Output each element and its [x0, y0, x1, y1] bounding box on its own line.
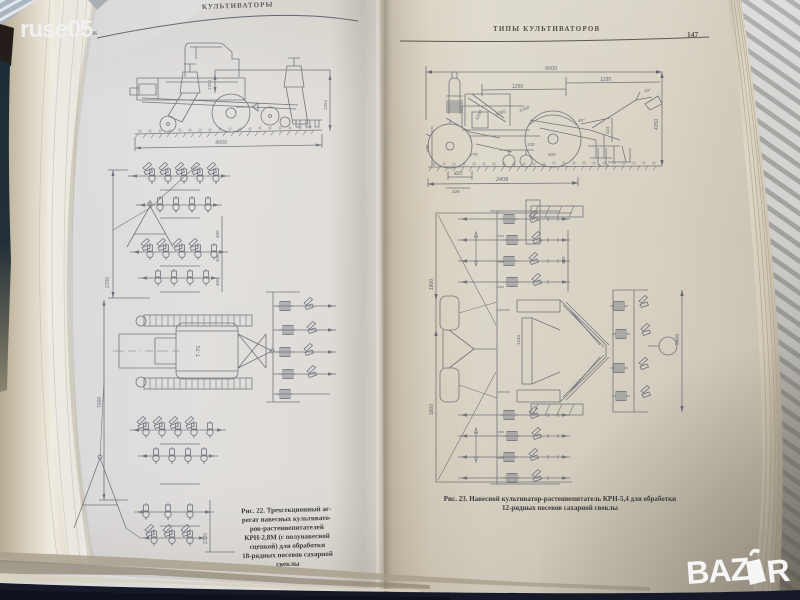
svg-text:5000: 5000	[545, 66, 558, 72]
svg-text:ruse05: ruse05	[20, 16, 93, 43]
svg-text:2700: 2700	[203, 533, 209, 544]
svg-text:10°: 10°	[644, 88, 651, 93]
svg-text:1240: 1240	[516, 334, 521, 345]
svg-text:BAZ: BAZ	[685, 551, 751, 591]
svg-text:424: 424	[605, 126, 610, 134]
svg-text:428: 428	[452, 189, 460, 194]
svg-text:4150: 4150	[654, 119, 660, 130]
svg-text:1800: 1800	[429, 404, 435, 415]
svg-text:450: 450	[215, 254, 220, 262]
svg-text:Т-70: Т-70	[196, 346, 202, 357]
svg-text:1254: 1254	[207, 79, 212, 90]
svg-text:свеклы: свеклы	[276, 560, 300, 569]
svg-text:ТИПЫ КУЛЬТИВАТОРОВ: ТИПЫ КУЛЬТИВАТОРОВ	[493, 25, 600, 33]
svg-text:1250: 1250	[512, 84, 523, 90]
svg-text:1800: 1800	[429, 279, 435, 290]
svg-text:5400: 5400	[675, 334, 681, 345]
svg-text:R: R	[765, 552, 792, 590]
svg-text:450: 450	[215, 230, 220, 238]
svg-text:1254: 1254	[323, 99, 328, 110]
svg-text:2408: 2408	[495, 177, 509, 183]
svg-text:275: 275	[469, 152, 478, 157]
svg-text:7000: 7000	[97, 397, 103, 408]
svg-text:420: 420	[454, 171, 463, 177]
svg-text:Рис. 23. Навесной культиватор-: Рис. 23. Навесной культиватор-растениепи…	[444, 495, 676, 503]
svg-text:4000: 4000	[215, 140, 228, 146]
svg-text:45°: 45°	[578, 118, 585, 123]
svg-text:400: 400	[548, 152, 556, 157]
svg-text:2700: 2700	[105, 277, 111, 288]
svg-text:490: 490	[425, 144, 430, 152]
svg-text:12-рядных посевов сахарной све: 12-рядных посевов сахарной свеклы	[502, 504, 618, 512]
svg-text:450: 450	[215, 278, 220, 286]
svg-text:130: 130	[527, 142, 535, 147]
svg-text:1230: 1230	[600, 77, 611, 83]
